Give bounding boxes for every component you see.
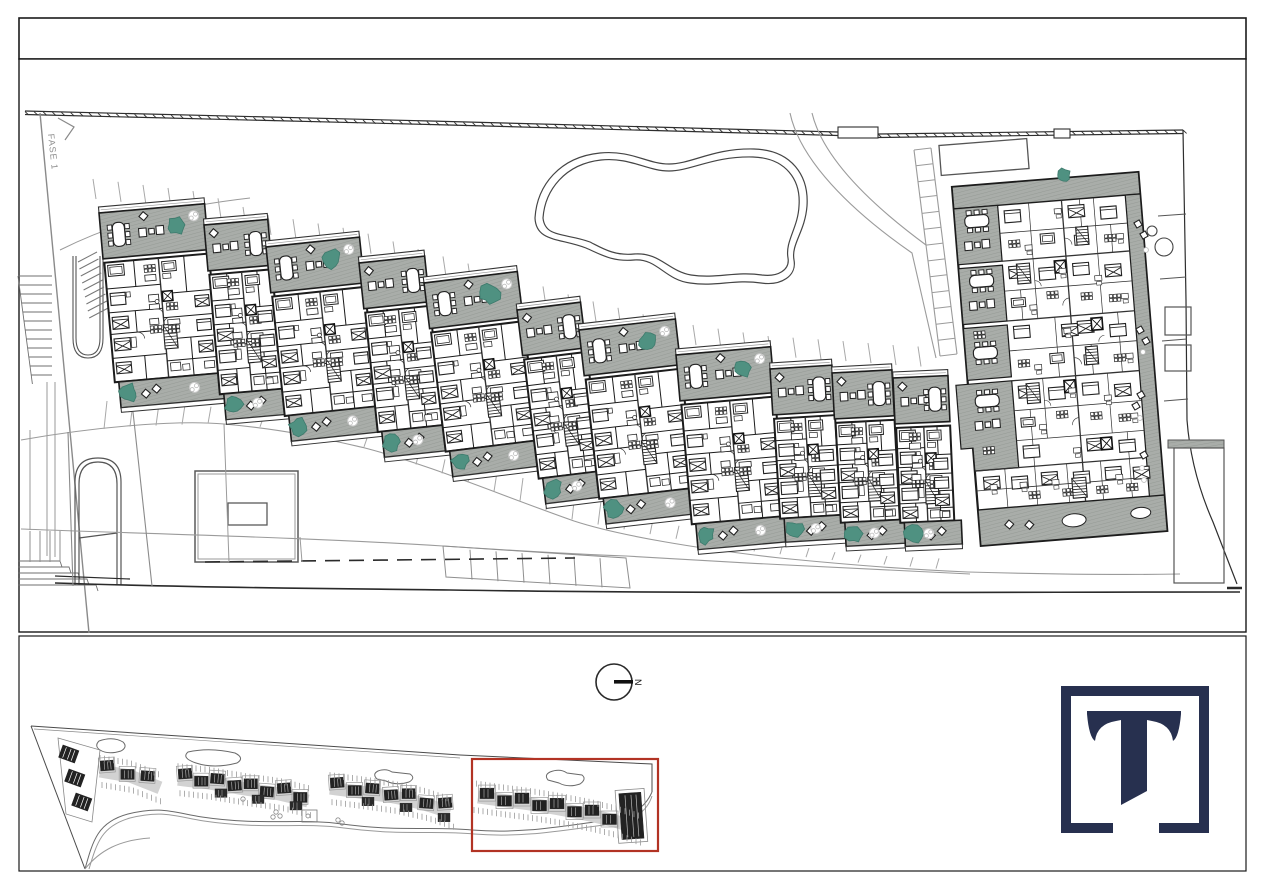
svg-text:N: N	[633, 679, 643, 686]
